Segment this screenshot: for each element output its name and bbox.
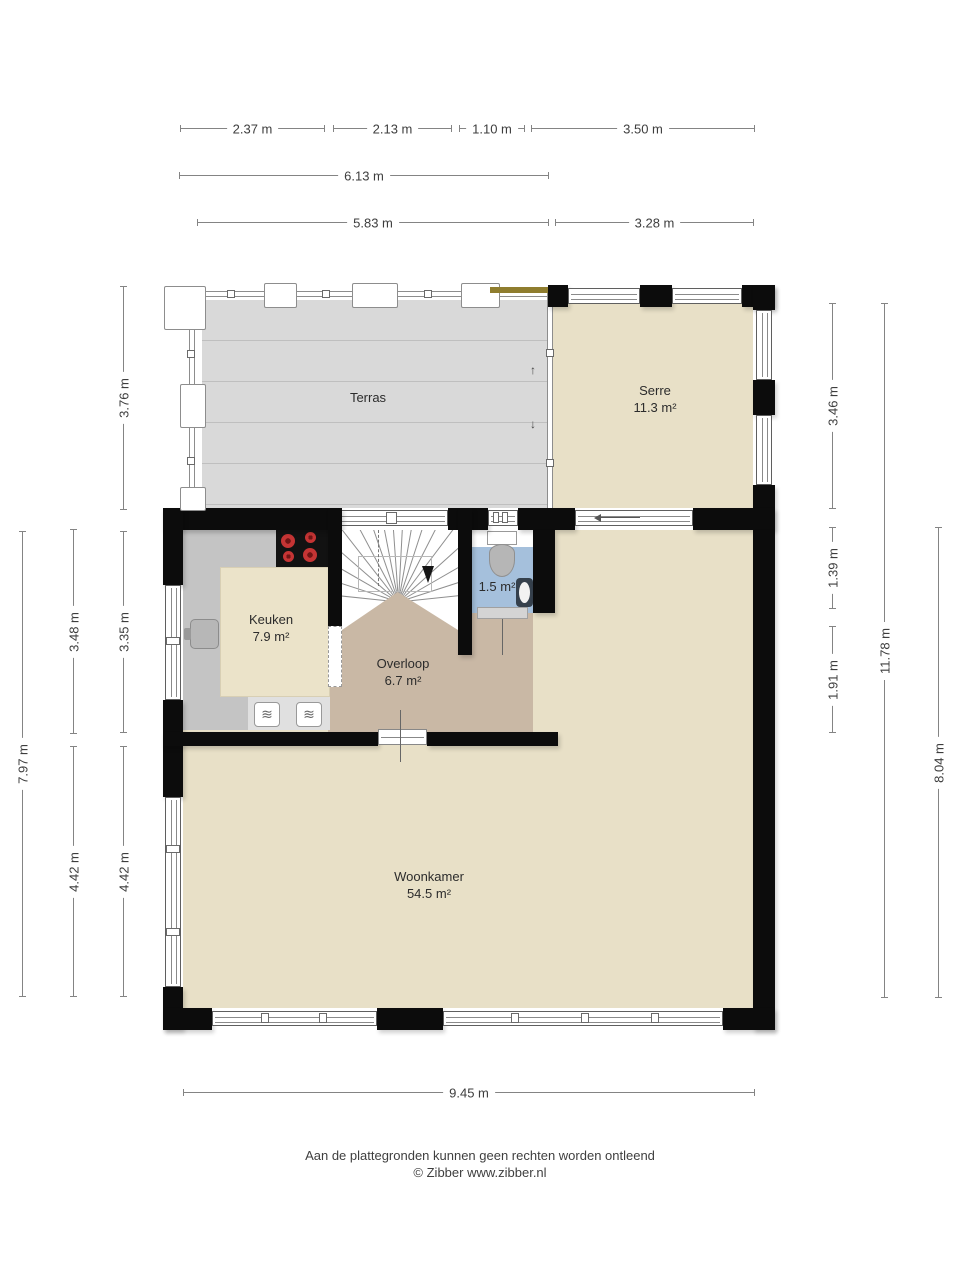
- dimension-bottom: 9.45 m: [183, 1085, 755, 1100]
- dimension-right: 1.39 m: [825, 527, 840, 609]
- divider-mullion: [546, 349, 554, 357]
- staircase: [342, 530, 458, 630]
- wall: [518, 508, 575, 530]
- window-mullion: [319, 1013, 327, 1023]
- burner-icon: [303, 548, 317, 562]
- window-mullion: [651, 1013, 659, 1023]
- oven-icon: ≋: [254, 702, 280, 727]
- kitchen-opening: [328, 626, 342, 687]
- dimension-top: 3.50 m: [531, 121, 755, 136]
- dimension-left: 3.76 m: [116, 286, 131, 510]
- railing-mullion: [187, 350, 195, 358]
- serre-window: [756, 310, 772, 380]
- window-mullion: [581, 1013, 589, 1023]
- stair-direction-arrow-icon: [422, 566, 434, 583]
- faucet-icon: [184, 628, 191, 640]
- railing-mullion: [227, 290, 235, 298]
- dimension-left: 7.97 m: [15, 531, 30, 997]
- door-sill: [378, 729, 427, 745]
- window-mullion: [386, 512, 397, 524]
- dimension-right: 11.78 m: [877, 303, 892, 998]
- wall: [163, 508, 336, 530]
- toilet-door-sill: [477, 607, 528, 619]
- woonkamer-window: [165, 797, 181, 987]
- wall: [427, 732, 558, 746]
- disclaimer-text: Aan de plattegronden kunnen geen rechten…: [0, 1147, 960, 1164]
- wall: [377, 1008, 443, 1030]
- railing-post: [264, 283, 297, 308]
- room-area: 1.5 m²: [479, 578, 516, 595]
- dimension-right: 8.04 m: [931, 527, 946, 998]
- window-mullion: [493, 512, 499, 523]
- room-area: 6.7 m²: [377, 672, 430, 689]
- burner-icon: [281, 534, 295, 548]
- slider-arrow-icon: [594, 514, 601, 522]
- window-mullion: [166, 637, 180, 645]
- dimension-top: 3.28 m: [555, 215, 754, 230]
- room-label-serre: Serre 11.3 m²: [633, 382, 676, 416]
- wall: [548, 285, 568, 307]
- burner-icon: [305, 532, 316, 543]
- wall: [753, 380, 775, 415]
- wall: [163, 1008, 212, 1030]
- overloop-floor: [342, 628, 533, 732]
- railing-mullion: [187, 457, 195, 465]
- toilet-icon: [489, 544, 515, 577]
- room-name: Serre: [633, 382, 676, 399]
- railing-corner-post: [164, 286, 206, 330]
- wall: [640, 285, 672, 307]
- serre-window: [672, 288, 742, 304]
- dimension-right: 1.91 m: [825, 626, 840, 733]
- wall: [328, 508, 342, 626]
- window-mullion: [166, 845, 180, 853]
- door-line: [400, 710, 401, 762]
- dimension-left: 4.42 m: [66, 746, 81, 997]
- room-name: Terras: [350, 389, 386, 406]
- wall: [753, 530, 775, 1030]
- oven-icon: ≋: [296, 702, 322, 727]
- divider-mullion: [546, 459, 554, 467]
- room-label-keuken: Keuken 7.9 m²: [249, 611, 293, 645]
- wall: [533, 530, 555, 613]
- serre-window: [756, 415, 772, 485]
- railing-mullion: [424, 290, 432, 298]
- room-area: 54.5 m²: [394, 885, 464, 902]
- washbasin-bowl: [519, 582, 530, 603]
- serre-window: [568, 288, 640, 304]
- dimension-right: 3.46 m: [825, 303, 840, 509]
- wall: [163, 508, 183, 585]
- dimension-top: 2.13 m: [333, 121, 452, 136]
- dimension-left: 3.35 m: [116, 531, 131, 733]
- burner-icon: [283, 551, 294, 562]
- wall: [723, 1008, 775, 1030]
- woonkamer-window: [212, 1011, 377, 1026]
- railing-post: [352, 283, 398, 308]
- wall: [693, 508, 775, 530]
- dimension-top: 2.37 m: [180, 121, 325, 136]
- room-label-toilet: 1.5 m²: [479, 578, 516, 595]
- down-arrow-icon: ↓: [530, 417, 536, 431]
- railing-mullion: [322, 290, 330, 298]
- wall: [753, 285, 775, 310]
- toilet-door-line: [502, 619, 503, 655]
- toilet-cistern-icon: [487, 531, 517, 545]
- dimension-left: 3.48 m: [66, 529, 81, 734]
- dimension-left: 4.42 m: [116, 746, 131, 997]
- dimension-top: 5.83 m: [197, 215, 549, 230]
- window-mullion: [261, 1013, 269, 1023]
- wall: [163, 700, 183, 797]
- overloop-floor: [328, 687, 342, 732]
- stair-flight-outline: [358, 556, 432, 592]
- up-arrow-icon: ↑: [530, 363, 536, 377]
- slider-arrow-line: [600, 517, 640, 518]
- copyright-text: © Zibber www.zibber.nl: [0, 1164, 960, 1181]
- sliding-door: [575, 510, 693, 526]
- room-area: 7.9 m²: [249, 628, 293, 645]
- room-name: Overloop: [377, 655, 430, 672]
- room-area: 11.3 m²: [633, 399, 676, 416]
- floor-plan: ↑ ↓ ≋ ≋: [0, 0, 960, 1280]
- room-label-woonkamer: Woonkamer 54.5 m²: [394, 868, 464, 902]
- stair-walk-line: [378, 530, 379, 586]
- room-label-terras: Terras: [350, 389, 386, 406]
- wall: [458, 508, 472, 655]
- sunscreen-bar: [490, 287, 548, 293]
- railing-post: [180, 487, 206, 511]
- window-mullion: [166, 928, 180, 936]
- room-name: Woonkamer: [394, 868, 464, 885]
- sink-icon: [190, 619, 219, 649]
- dimension-top: 6.13 m: [179, 168, 549, 183]
- room-name: Keuken: [249, 611, 293, 628]
- window-mullion: [511, 1013, 519, 1023]
- window-mullion: [502, 512, 508, 523]
- railing-post: [180, 384, 206, 428]
- wall: [163, 732, 378, 746]
- dimension-top: 1.10 m: [459, 121, 525, 136]
- room-label-overloop: Overloop 6.7 m²: [377, 655, 430, 689]
